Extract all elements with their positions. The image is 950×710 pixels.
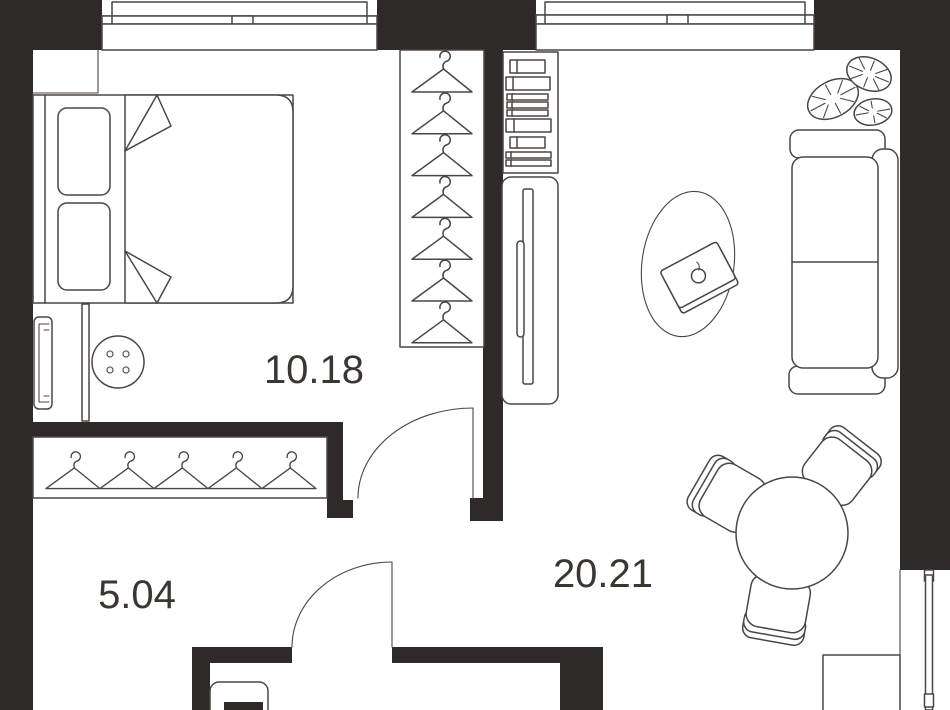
pillow: [58, 203, 110, 290]
door-swing-arc: [358, 408, 473, 498]
dining-table: [736, 477, 848, 589]
washing-machine-door: [224, 702, 263, 710]
partition-screen: [82, 304, 89, 421]
pouf-seat: [92, 336, 144, 388]
window-mullion: [667, 15, 688, 24]
window-mullion: [232, 16, 253, 24]
window-glazing: [926, 575, 933, 710]
door-swing-arc: [292, 562, 392, 647]
window-outer-sill: [545, 2, 805, 15]
plant-leaf: [852, 96, 894, 128]
hallway-area-label: 5.04: [98, 573, 176, 617]
pillow: [58, 108, 110, 195]
shelf-unit: [503, 52, 558, 173]
wall-right: [900, 50, 950, 570]
window-cap: [805, 15, 814, 24]
pouf: [92, 336, 144, 388]
wall-niche-line: [33, 50, 98, 93]
window-cap: [536, 15, 545, 24]
washing-machine: [210, 682, 268, 710]
wall-left: [0, 50, 33, 710]
floor-plan-canvas: 10.18 5.04 20.21: [0, 0, 950, 710]
dining-set: [683, 422, 885, 647]
window-cap: [102, 16, 112, 24]
window-outer-sill: [112, 2, 367, 16]
cabinet-handle: [517, 241, 524, 337]
living-room-area-label: 20.21: [553, 552, 653, 596]
coat-rack: [33, 437, 327, 498]
tv-stand: [823, 655, 900, 710]
wall-top-left: [0, 0, 102, 50]
window-bedroom: [102, 2, 377, 50]
window-inner-sill: [102, 24, 377, 50]
radiator: [34, 317, 52, 409]
door-bedroom: [358, 408, 473, 498]
floor-plan: 10.18 5.04 20.21: [0, 0, 950, 710]
coffee-table: [660, 241, 739, 313]
bedroom-area-label: 10.18: [264, 348, 364, 392]
radiator-body: [34, 317, 52, 409]
wall-top-right: [814, 0, 950, 50]
monstera-plant: [801, 51, 897, 129]
wall-bottom-pier: [560, 647, 603, 710]
window-living: [536, 2, 814, 50]
wall-divider: [483, 50, 503, 521]
double-bed: [33, 95, 293, 303]
wall-door-foot-left: [327, 500, 353, 518]
door-bathroom: [292, 562, 392, 647]
wall-top-middle: [377, 0, 536, 50]
window-east: [900, 570, 934, 710]
wall-bedroom-south: [33, 422, 343, 438]
window-inner-sill: [536, 24, 814, 50]
wall-bottom-left-pier: [192, 647, 210, 710]
sofa: [789, 130, 898, 394]
closet-wardrobe: [400, 50, 484, 347]
sofa-armrest: [789, 366, 885, 394]
sofa-armrest: [790, 130, 885, 158]
window-cap: [925, 694, 934, 707]
wall-door-foot-right: [470, 498, 503, 521]
wall-bottom-middle: [392, 647, 560, 663]
tall-cabinet: [502, 177, 558, 404]
window-cap: [367, 16, 377, 24]
